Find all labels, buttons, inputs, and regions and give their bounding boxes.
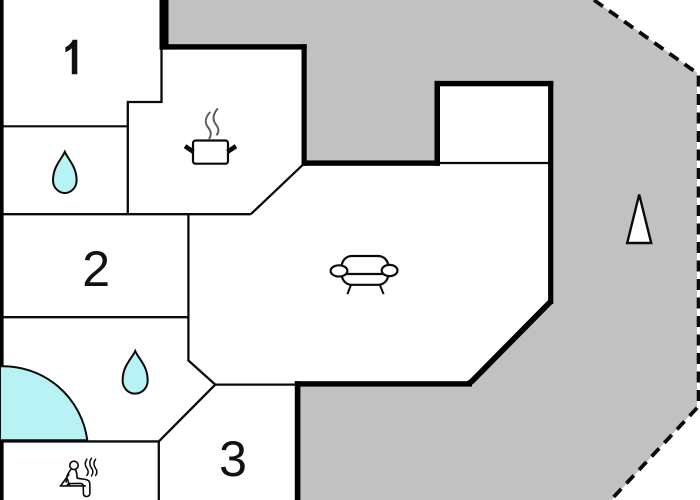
- svg-text:2: 2: [82, 241, 110, 297]
- svg-text:3: 3: [219, 431, 247, 487]
